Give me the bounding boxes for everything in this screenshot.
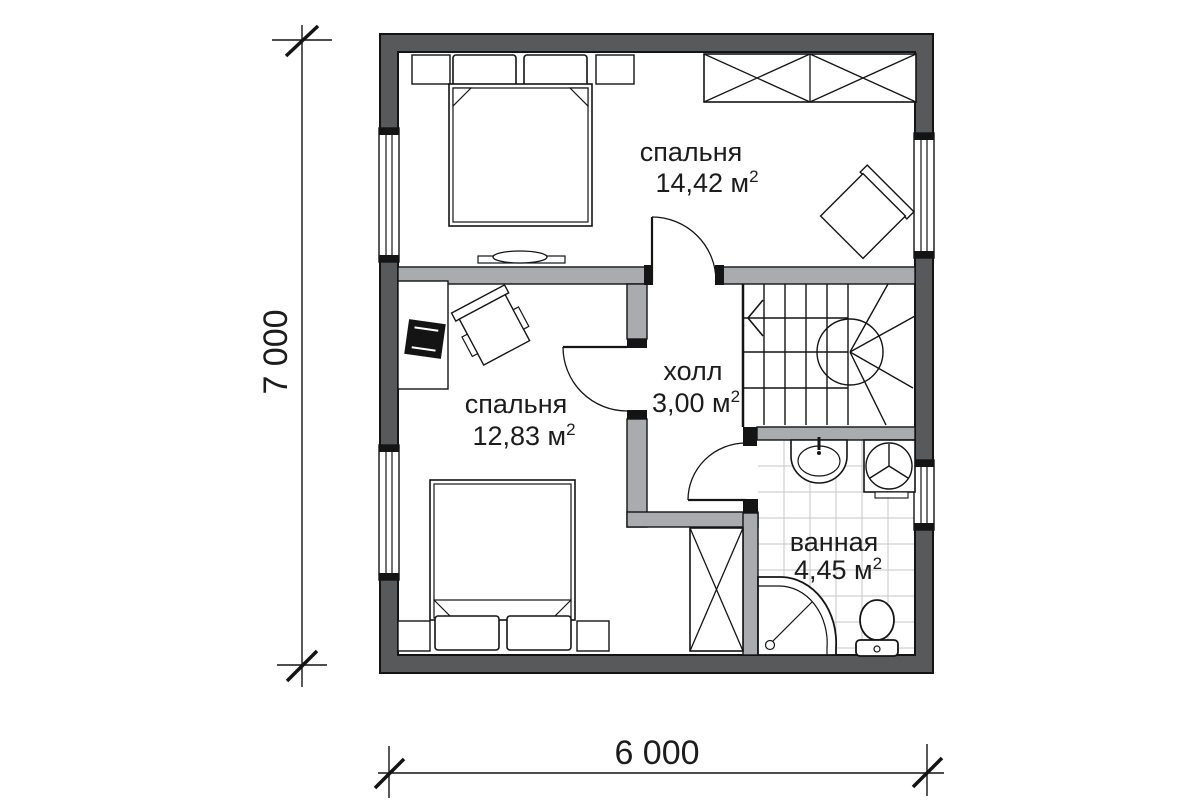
jamb — [627, 339, 647, 348]
stairs-step-lines-horizontal — [743, 318, 848, 388]
window-cap — [914, 523, 934, 530]
stairs-winder — [743, 284, 915, 427]
door-swing-arc — [688, 443, 746, 500]
floor-plan-page: спальня 14,42 м2 спальня 12,83 м2 холл 3… — [0, 0, 1200, 800]
window-cap — [379, 255, 399, 262]
toilet-bowl — [860, 600, 894, 640]
door-bathroom — [688, 443, 746, 500]
pillow — [507, 616, 571, 650]
door-swing-arc — [563, 347, 627, 411]
room-label-bathroom: ванная — [790, 527, 879, 557]
wall-hall-bedroom-upper — [627, 284, 647, 339]
wall-stairs-bathroom — [757, 427, 915, 440]
tv-screen — [493, 251, 547, 263]
room-area-hall: 3,00 м2 — [652, 387, 740, 418]
wall-hall-bottom — [627, 512, 758, 527]
jamb — [627, 410, 647, 419]
window-left-bottom — [379, 445, 399, 580]
desk-chair — [450, 284, 535, 368]
wall-bathroom-left — [743, 513, 758, 655]
door-swing-arc — [652, 217, 716, 281]
washing-machine — [864, 440, 915, 498]
wardrobe-crossed — [690, 528, 743, 651]
window-cap — [379, 445, 399, 452]
window-cap — [914, 251, 934, 258]
stairs-step-lines-vertical — [764, 284, 848, 425]
room-label-bedroom-bottom: спальня — [465, 389, 568, 419]
floor-plan-drawing: спальня 14,42 м2 спальня 12,83 м2 холл 3… — [0, 0, 1200, 800]
window-left-top — [379, 128, 399, 262]
sink-basin-inner — [798, 446, 840, 476]
bedroom-bottom-furniture — [398, 281, 743, 651]
nightstand — [577, 621, 609, 651]
nightstand — [412, 55, 450, 84]
computer-body — [405, 320, 445, 359]
room-label-bedroom-top: спальня — [640, 137, 743, 167]
wall-hall-bedroom-lower — [627, 419, 647, 527]
sink — [791, 437, 847, 483]
room-area-bedroom-bottom: 12,83 м2 — [472, 420, 575, 451]
window-right-bathroom — [914, 460, 934, 530]
armchair-seat — [821, 174, 906, 259]
computer — [405, 320, 445, 359]
dimension-label-height: 7 000 — [257, 309, 295, 394]
sink-drain — [817, 451, 821, 455]
room-area-bathroom: 4,45 м2 — [794, 554, 882, 585]
window-right-top — [914, 133, 934, 258]
armchair — [818, 165, 913, 260]
door-bedroom-top — [652, 217, 716, 281]
nightstand — [398, 621, 430, 651]
window-cap — [914, 133, 934, 140]
washing-machine-tray — [875, 492, 908, 498]
wall-bedroomtop-right — [716, 267, 915, 284]
window-cap — [914, 460, 934, 467]
room-label-hall: холл — [663, 356, 722, 386]
wardrobe-crossed — [704, 54, 916, 102]
shower-drain — [766, 641, 775, 650]
window-cap — [379, 573, 399, 580]
window-cap — [379, 128, 399, 135]
double-bed-mattress — [453, 88, 588, 222]
pillow — [435, 616, 499, 650]
shower-corner — [758, 577, 836, 655]
double-bed-mattress — [434, 484, 571, 600]
toilet-button — [874, 646, 880, 652]
room-area-bedroom-top: 14,42 м2 — [655, 167, 758, 198]
dimension-label-width: 6 000 — [614, 734, 699, 772]
toilet — [856, 600, 898, 656]
door-bedroom-bottom — [563, 347, 627, 411]
nightstand — [596, 55, 634, 84]
tv-console — [478, 251, 565, 263]
